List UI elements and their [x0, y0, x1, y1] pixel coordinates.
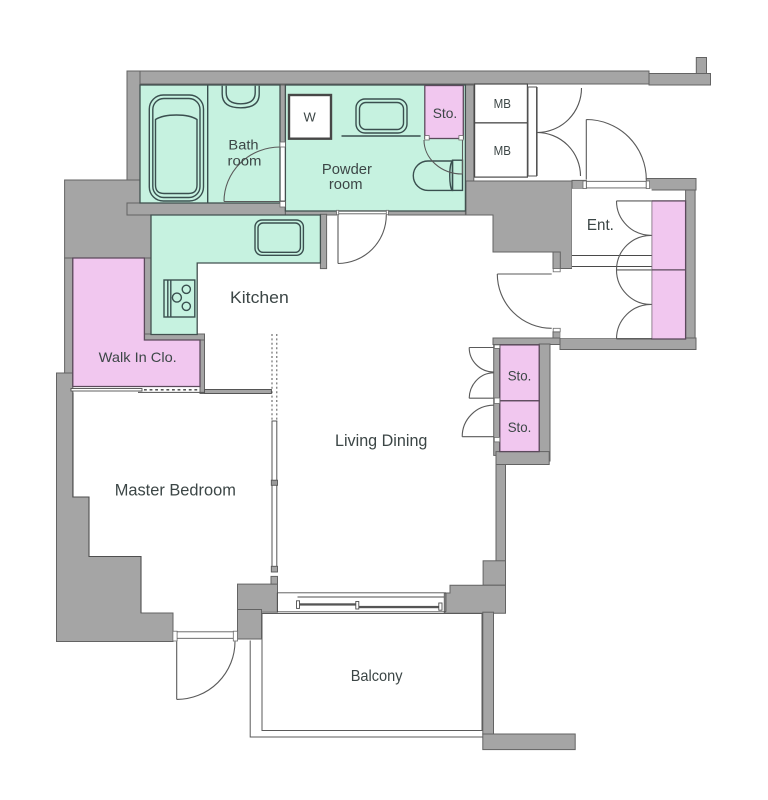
svg-text:Sto.: Sto. [508, 419, 532, 435]
svg-text:Balcony: Balcony [351, 668, 403, 685]
svg-text:W: W [304, 110, 317, 125]
svg-text:Walk In Clo.: Walk In Clo. [99, 349, 177, 365]
svg-text:room: room [228, 154, 262, 169]
svg-text:Sto.: Sto. [508, 368, 532, 384]
svg-text:MB: MB [494, 97, 511, 111]
svg-text:Master Bedroom: Master Bedroom [115, 482, 236, 500]
svg-text:Kitchen: Kitchen [230, 289, 289, 307]
svg-text:Living Dining: Living Dining [335, 432, 427, 450]
svg-text:Sto.: Sto. [433, 105, 458, 121]
svg-text:room: room [329, 176, 363, 193]
svg-text:Ent.: Ent. [587, 217, 614, 234]
svg-text:Bath: Bath [228, 137, 258, 152]
svg-text:MB: MB [494, 144, 511, 158]
